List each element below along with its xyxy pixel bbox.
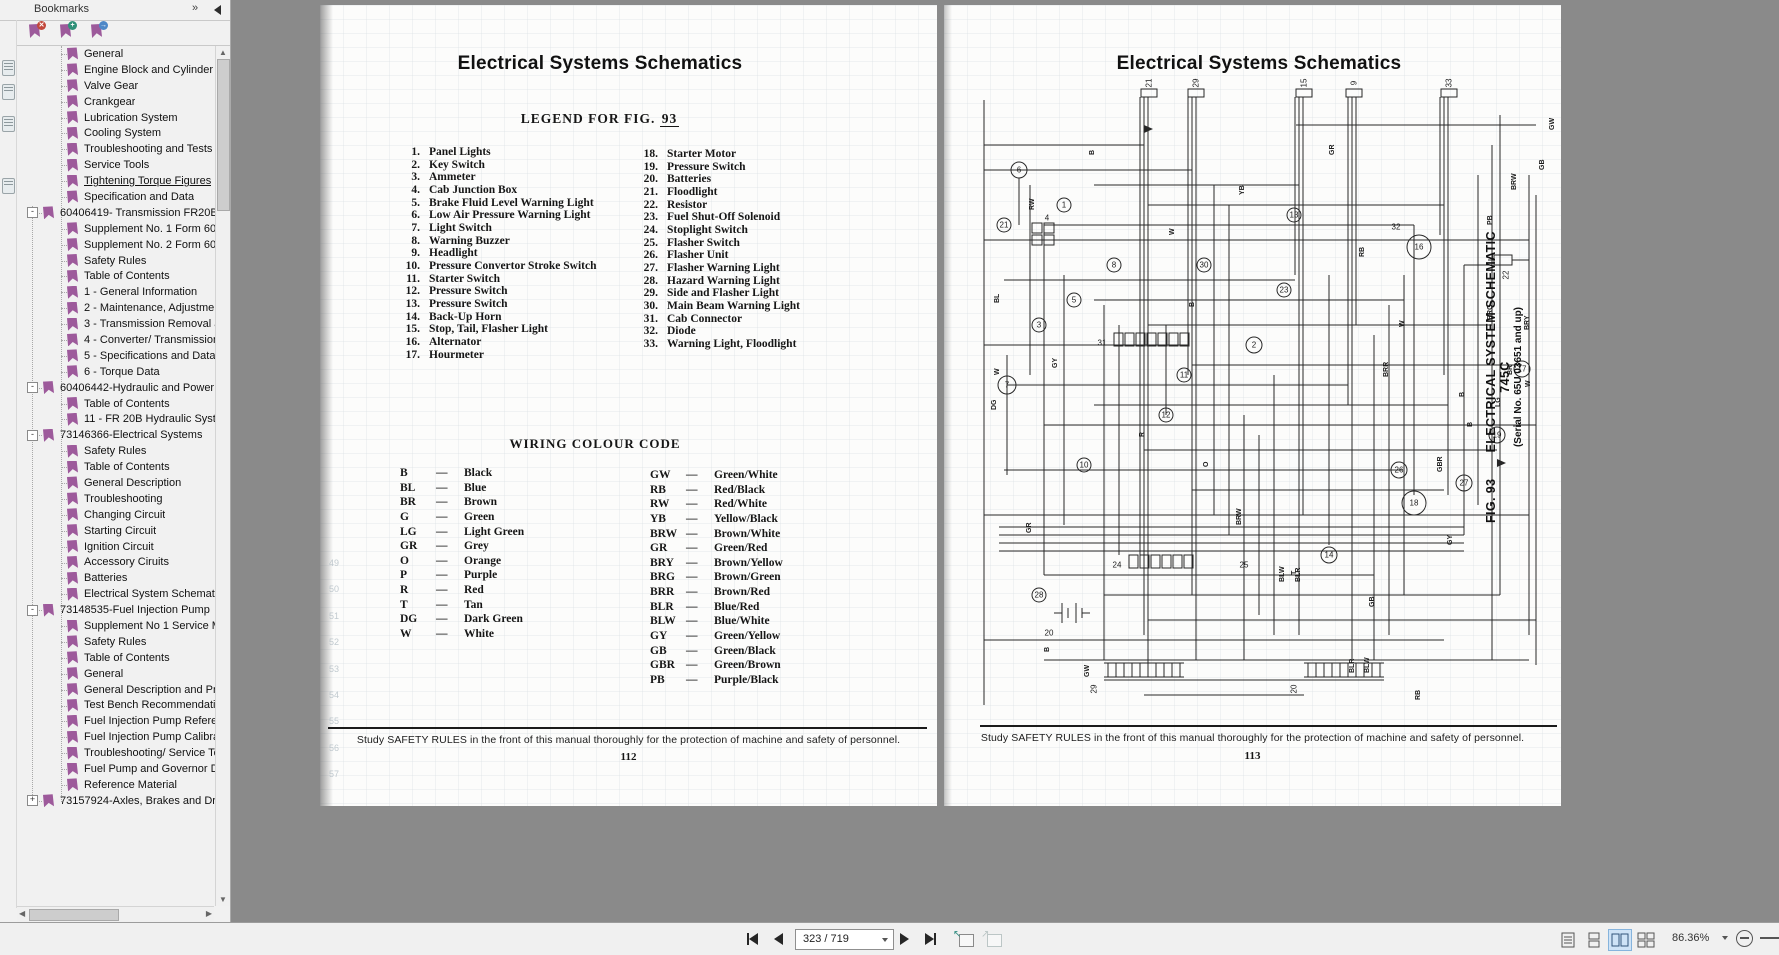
component-number: 24 — [1113, 561, 1122, 570]
bookmark-label: Fuel Injection Pump Reference, — [84, 715, 215, 727]
wire-colour-label: B — [1459, 392, 1466, 397]
new-bookmark-button[interactable]: + — [60, 24, 72, 39]
bookmark-icon — [43, 794, 54, 807]
bookmark-item[interactable]: Changing Circuit — [17, 507, 215, 523]
continuous-scroll-view-button[interactable] — [1582, 929, 1606, 951]
dash: — — [686, 542, 714, 554]
bookmark-icon — [67, 763, 78, 776]
bookmark-item[interactable]: Fuel Pump and Governor Disass — [17, 761, 215, 777]
collapse-icon[interactable]: - — [27, 605, 38, 616]
bookmarks-horizontal-scrollbar[interactable]: ◀ ▶ — [17, 906, 214, 922]
colour-code-item: GB—Green/Black — [650, 645, 783, 660]
component-number: 28 — [1035, 591, 1044, 600]
bookmark-item[interactable]: Batteries — [17, 570, 215, 586]
bookmark-item[interactable]: 6 - Torque Data — [17, 364, 215, 380]
colour-name: Light Green — [464, 526, 524, 538]
colour-code: BRW — [650, 528, 686, 540]
scroll-left-icon[interactable]: ◀ — [19, 909, 25, 918]
panel-collapse-icon[interactable] — [214, 5, 221, 15]
bookmark-icon — [67, 175, 78, 188]
legend-item: 5.Brake Fluid Level Warning Light — [394, 197, 596, 210]
bookmarks-panel-header: Bookmarks » — [0, 0, 230, 21]
single-page-icon — [1560, 932, 1576, 948]
collapse-icon[interactable]: - — [27, 382, 38, 393]
viewer-toolbar: 323 / 719 ↖ ↗ — [0, 922, 1779, 955]
bookmark-item[interactable]: -73148535-Fuel Injection Pump — [17, 602, 215, 618]
component-number: 23 — [1280, 286, 1289, 295]
legend-item-number: 20. — [632, 173, 658, 185]
legend-item-label: Diode — [667, 325, 696, 337]
next-view-button[interactable]: ↗ — [980, 930, 1003, 948]
bookmark-item[interactable]: Table of Contents — [17, 268, 215, 284]
bookmarks-vertical-scrollbar[interactable]: ▲ ▼ — [215, 46, 230, 906]
legend-item-number: 11. — [394, 273, 420, 285]
wire-colour-label: B — [1189, 302, 1196, 307]
bookmark-item[interactable]: Starting Circuit — [17, 523, 215, 539]
single-page-view-button[interactable] — [1556, 929, 1580, 951]
legend-item-number: 6. — [394, 209, 420, 221]
safety-note: Study SAFETY RULES in the front of this … — [944, 732, 1561, 744]
previous-view-button[interactable]: ↖ — [952, 930, 975, 948]
bookmark-item[interactable]: 1 - General Information — [17, 284, 215, 300]
component-number: 30 — [1200, 261, 1209, 270]
bookmark-item[interactable]: Ignition Circuit — [17, 539, 215, 555]
dash: — — [436, 526, 464, 538]
wire-colour-label: BLR — [1295, 568, 1302, 582]
bookmark-label: Starting Circuit — [84, 525, 156, 537]
bookmark-item[interactable]: Table of Contents — [17, 459, 215, 475]
scrollbar-thumb[interactable] — [217, 59, 230, 211]
colour-code-item: G—Green — [400, 511, 524, 526]
bookmark-item[interactable]: Safety Rules — [17, 253, 215, 269]
legend-item-label: Warning Buzzer — [429, 235, 510, 247]
dash: — — [436, 613, 464, 625]
wire-colour-label: W — [1399, 320, 1406, 327]
bookmark-label: Supplement No. 1 Form 604.06 — [84, 223, 215, 235]
colour-code-item: BL—Blue — [400, 482, 524, 497]
bookmark-item[interactable]: Table of Contents — [17, 396, 215, 412]
previous-page-button[interactable] — [774, 930, 783, 948]
bookmark-item[interactable]: Engine Block and Cylinder Head — [17, 62, 215, 78]
bookmark-label: Safety Rules — [84, 255, 146, 267]
component-number: 8 — [1112, 261, 1117, 270]
colour-name: Grey — [464, 540, 489, 552]
colour-code-column-1: B—BlackBL—BlueBR—BrownG—GreenLG—Light Gr… — [400, 467, 524, 643]
component-number: 20 — [1290, 684, 1299, 693]
bookmark-item[interactable]: 11 - FR 20B Hydraulic System — [17, 411, 215, 427]
zoom-out-button[interactable] — [1736, 930, 1753, 947]
legend-item-label: Headlight — [429, 247, 478, 259]
bookmark-item[interactable]: General — [17, 666, 215, 682]
bookmark-icon — [67, 715, 78, 728]
colour-name: Brown — [464, 496, 497, 508]
legend-column-1: 1.Panel Lights2.Key Switch3.Ammeter4.Cab… — [394, 146, 596, 361]
legend-item-label: Hazard Warning Light — [667, 275, 780, 287]
bookmark-item[interactable]: Fuel Injection Pump Reference, — [17, 713, 215, 729]
layers-tab-icon[interactable] — [2, 178, 15, 194]
colour-code: P — [400, 569, 436, 581]
bookmark-label: Test Bench Recommendations — [84, 699, 215, 711]
bookmark-label: 3 - Transmission Removal and In — [84, 318, 215, 330]
colour-code-item: O—Orange — [400, 555, 524, 570]
colour-code: YB — [650, 513, 686, 525]
dash: — — [686, 645, 714, 657]
bookmark-label: Supplement No 1 Service Manu — [84, 620, 215, 632]
bookmark-item[interactable]: General Description — [17, 475, 215, 491]
bookmark-item[interactable]: Electrical System Schematics — [17, 586, 215, 602]
component-number: 5 — [1072, 296, 1077, 305]
bookmark-label: 2 - Maintenance, Adjustments a — [84, 302, 215, 314]
bookmark-icon — [43, 381, 54, 394]
legend-item-label: Cab Junction Box — [429, 184, 517, 196]
zoom-dropdown-icon[interactable] — [1722, 936, 1728, 940]
component-number: 21 — [1000, 221, 1009, 230]
next-page-button[interactable] — [900, 930, 909, 948]
legend-item: 32.Diode — [632, 325, 800, 338]
wire-colour-label: RW — [1029, 198, 1036, 210]
bookmark-item[interactable]: -60406419- Transmission FR20B, FR — [17, 205, 215, 221]
legend-item-number: 21. — [632, 186, 658, 198]
colour-code-item: BRY—Brown/Yellow — [650, 557, 783, 572]
page-number: 113 — [944, 750, 1561, 762]
page-title: Electrical Systems Schematics — [1044, 53, 1474, 75]
colour-name: Green/Red — [714, 542, 767, 554]
bookmark-item[interactable]: Safety Rules — [17, 634, 215, 650]
colour-code: BLW — [650, 615, 686, 627]
bookmark-icon — [67, 190, 78, 203]
bleed-number: 54 — [329, 690, 339, 716]
colour-name: Green/Yellow — [714, 630, 780, 642]
bookmark-item[interactable]: General Description and Principl — [17, 682, 215, 698]
legend-item-label: Starter Motor — [667, 148, 736, 160]
legend-fig-number: 93 — [660, 111, 680, 127]
colour-name: Blue/Red — [714, 601, 759, 613]
dash: — — [686, 498, 714, 510]
bookmark-item[interactable]: -60406442-Hydraulic and Power Ste — [17, 380, 215, 396]
colour-code: BL — [400, 482, 436, 494]
bookmark-item[interactable]: 2 - Maintenance, Adjustments a — [17, 300, 215, 316]
wire-colour-label: GW — [1549, 118, 1556, 130]
colour-code-item: BRR—Brown/Red — [650, 586, 783, 601]
bookmark-label: General Description and Principl — [84, 684, 215, 696]
colour-name: Green — [464, 511, 494, 523]
bookmark-label: Troubleshooting/ Service Tools — [84, 747, 215, 759]
bookmark-item[interactable]: Supplement No. 1 Form 604.06 — [17, 221, 215, 237]
wire-colour-label: O — [1203, 461, 1210, 467]
bookmark-item[interactable]: 4 - Converter/ Transmission Uni — [17, 332, 215, 348]
bookmark-label: Lubrication System — [84, 112, 178, 124]
bookmark-label: 73146366-Electrical Systems — [60, 429, 202, 441]
legend-item: 21.Floodlight — [632, 186, 800, 199]
legend-item-number: 14. — [394, 311, 420, 323]
colour-name: Brown/Green — [714, 571, 781, 583]
bookmark-icon — [67, 159, 78, 172]
legend-item: 18.Starter Motor — [632, 148, 800, 161]
component-number: 9 — [1350, 80, 1359, 85]
colour-code: GW — [650, 469, 686, 481]
colour-code: W — [400, 628, 436, 640]
dash: — — [686, 630, 714, 642]
dash: — — [436, 555, 464, 567]
bookmark-label: Service Tools — [84, 159, 149, 171]
colour-code-item: GY—Green/Yellow — [650, 630, 783, 645]
legend-item-number: 5. — [394, 197, 420, 209]
colour-name: Dark Green — [464, 613, 523, 625]
legend-item-number: 27. — [632, 262, 658, 274]
bookmark-icon — [67, 397, 78, 410]
legend-item-label: Brake Fluid Level Warning Light — [429, 197, 594, 209]
bookmark-item[interactable]: Supplement No 1 Service Manu — [17, 618, 215, 634]
bookmark-item[interactable]: Troubleshooting — [17, 491, 215, 507]
zoom-level-value[interactable]: 86.36% — [1672, 932, 1709, 944]
colour-code-item: R—Red — [400, 584, 524, 599]
bookmark-icon — [67, 302, 78, 315]
legend-item-number: 12. — [394, 285, 420, 297]
bookmark-icon — [67, 683, 78, 696]
colour-name: Red — [464, 584, 484, 596]
legend-item: 30.Main Beam Warning Light — [632, 300, 800, 313]
wire-colour-label: GB — [1369, 597, 1376, 608]
zoom-slider-track[interactable] — [1760, 937, 1779, 939]
legend-item-label: Pressure Switch — [667, 161, 745, 173]
component-number: 12 — [1162, 411, 1171, 420]
bookmark-label: Fuel Pump and Governor Disass — [84, 763, 215, 775]
two-page-scroll-view-button[interactable] — [1634, 929, 1658, 951]
dash: — — [686, 615, 714, 627]
legend-item-label: Light Switch — [429, 222, 492, 234]
last-page-button[interactable] — [925, 930, 936, 948]
colour-code-item: BRG—Brown/Green — [650, 571, 783, 586]
bookmark-item[interactable]: 3 - Transmission Removal and In — [17, 316, 215, 332]
colour-name: Purple/Black — [714, 674, 779, 686]
colour-code-column-2: GW—Green/WhiteRB—Red/BlackRW—Red/WhiteYB… — [650, 469, 783, 688]
component-number: 31 — [1098, 339, 1107, 348]
bookmark-label: General — [84, 668, 123, 680]
dash: — — [436, 482, 464, 494]
bookmark-icon — [67, 111, 78, 124]
figure-number: FIG. 93 — [1484, 479, 1498, 523]
component-number: 16 — [1415, 243, 1424, 252]
colour-name: Orange — [464, 555, 501, 567]
bookmark-item[interactable]: Tightening Torque Figures — [17, 173, 215, 189]
bookmark-item[interactable]: Cooling System — [17, 125, 215, 141]
bookmark-item[interactable]: Lubrication System — [17, 110, 215, 126]
bookmark-label: Cooling System — [84, 127, 161, 139]
component-number: 11 — [1180, 371, 1189, 380]
legend-heading: LEGEND FOR FIG. 93 — [400, 111, 800, 127]
legend-item-label: Flasher Switch — [667, 237, 740, 249]
two-page-icon — [1611, 932, 1629, 948]
dash: — — [436, 496, 464, 508]
legend-item-label: Low Air Pressure Warning Light — [429, 209, 590, 221]
bookmark-label: Troubleshooting — [84, 493, 162, 505]
first-page-button[interactable] — [747, 930, 758, 948]
bookmark-item[interactable]: Accessory Ciruits — [17, 555, 215, 571]
panel-expand-icon[interactable]: » — [192, 2, 198, 14]
legend-item-number: 26. — [632, 249, 658, 261]
bookmark-icon — [43, 429, 54, 442]
legend-item-label: Pressure Switch — [429, 298, 507, 310]
wire-colour-label: GY — [1052, 358, 1059, 368]
bookmark-icon — [67, 667, 78, 680]
legend-item: 31.Cab Connector — [632, 313, 800, 326]
legend-item-label: Alternator — [429, 336, 481, 348]
previous-page-icon — [774, 933, 783, 945]
bookmark-label: 1 - General Information — [84, 286, 197, 298]
dash: — — [686, 469, 714, 481]
wire-colour-label: BRY — [1524, 315, 1531, 330]
legend-item-number: 7. — [394, 222, 420, 234]
thumbnails-tab-icon[interactable] — [2, 60, 15, 76]
pdf-viewer-window: { "sidebar": { "title": "Bookmarks", "ex… — [0, 0, 1779, 954]
wire-colour-label: GR — [1026, 523, 1033, 534]
dash: — — [686, 674, 714, 686]
colour-code: B — [400, 467, 436, 479]
legend-item-number: 23. — [632, 211, 658, 223]
scroll-down-icon[interactable]: ▼ — [219, 895, 227, 904]
legend-item-number: 32. — [632, 325, 658, 337]
legend-item: 15.Stop, Tail, Flasher Light — [394, 323, 596, 336]
colour-code-item: W—White — [400, 628, 524, 643]
bookmark-item[interactable]: Troubleshooting and Tests — [17, 141, 215, 157]
goto-badge-icon: → — [99, 21, 108, 30]
bookmark-icon — [67, 731, 78, 744]
legend-item-number: 2. — [394, 159, 420, 171]
bookmark-label: Valve Gear — [84, 80, 138, 92]
legend-item-number: 1. — [394, 146, 420, 158]
scroll-right-icon[interactable]: ▶ — [206, 909, 212, 918]
legend-item: 24.Stoplight Switch — [632, 224, 800, 237]
bookmark-item[interactable]: Troubleshooting/ Service Tools — [17, 745, 215, 761]
goto-bookmark-button[interactable]: → — [91, 24, 103, 39]
next-view-arrow-icon: ↗ — [981, 930, 989, 940]
legend-item-number: 18. — [632, 148, 658, 160]
bookmark-item[interactable]: Crankgear — [17, 94, 215, 110]
bookmark-icon — [67, 461, 78, 474]
colour-code-item: GW—Green/White — [650, 469, 783, 484]
bookmark-label: General Description — [84, 477, 181, 489]
component-number: 4 — [1045, 214, 1050, 223]
bookmark-item[interactable]: Reference Material — [17, 777, 215, 793]
bookmark-label: Changing Circuit — [84, 509, 165, 521]
bookmark-icon — [67, 524, 78, 537]
bookmark-icon — [67, 222, 78, 235]
wire-colour-label: R — [1139, 432, 1146, 437]
dash: — — [436, 584, 464, 596]
colour-code-item: P—Purple — [400, 569, 524, 584]
legend-item: 29.Side and Flasher Light — [632, 287, 800, 300]
bleed-number: 50 — [329, 584, 339, 610]
bookmark-label: 73157924-Axles, Brakes and Drive — [60, 795, 215, 807]
bookmark-icon — [67, 476, 78, 489]
bookmark-label: Reference Material — [84, 779, 177, 791]
dash: — — [436, 540, 464, 552]
wire-colour-label: BRR — [1383, 362, 1390, 377]
bookmark-icon — [67, 445, 78, 458]
bookmark-label: Table of Contents — [84, 398, 170, 410]
bookmark-icon — [67, 286, 78, 299]
collapse-icon[interactable]: - — [27, 430, 38, 441]
bookmark-label: 5 - Specifications and Data — [84, 350, 215, 362]
bookmark-label: Safety Rules — [84, 445, 146, 457]
bookmark-item[interactable]: Valve Gear — [17, 78, 215, 94]
chevron-down-icon[interactable] — [882, 938, 888, 942]
dash: — — [686, 557, 714, 569]
legend-item-number: 3. — [394, 171, 420, 183]
component-number: 3 — [1037, 321, 1042, 330]
bookmark-label: Table of Contents — [84, 652, 170, 664]
legend-item-label: Cab Connector — [667, 313, 742, 325]
legend-item: 20.Batteries — [632, 173, 800, 186]
two-page-view-button[interactable] — [1608, 929, 1632, 951]
dash: — — [436, 599, 464, 611]
colour-code: LG — [400, 526, 436, 538]
expand-icon[interactable]: + — [27, 795, 38, 806]
bookmark-item[interactable]: Service Tools — [17, 157, 215, 173]
wire-colour-label: RB — [1359, 247, 1366, 257]
component-number: 29 — [1090, 684, 1099, 693]
bookmark-item[interactable]: Test Bench Recommendations — [17, 698, 215, 714]
colour-name: Green/White — [714, 469, 778, 481]
colour-code: BRR — [650, 586, 686, 598]
bookmark-item[interactable]: Safety Rules — [17, 443, 215, 459]
wire-colour-label: BL — [994, 293, 1001, 303]
attachments-tab-icon[interactable] — [2, 116, 15, 132]
page-number-input[interactable]: 323 / 719 — [795, 929, 894, 950]
collapse-icon[interactable]: - — [27, 207, 38, 218]
scrollbar-thumb[interactable] — [29, 909, 119, 921]
legend-item-label: Ammeter — [429, 171, 476, 183]
colour-code: RW — [650, 498, 686, 510]
legend-item-number: 33. — [632, 338, 658, 350]
bookmark-item[interactable]: Table of Contents — [17, 650, 215, 666]
bookmark-item[interactable]: Supplement No. 2 Form 604.06 — [17, 237, 215, 253]
colour-name: Yellow/Black — [714, 513, 778, 525]
colour-code-item: GR—Grey — [400, 540, 524, 555]
colour-code-item: T—Tan — [400, 599, 524, 614]
bookmark-item[interactable]: +73157924-Axles, Brakes and Drive — [17, 793, 215, 809]
bookmarks-tab-icon[interactable] — [2, 84, 15, 100]
bookmark-item[interactable]: Fuel Injection Pump Calibration — [17, 729, 215, 745]
bookmark-item[interactable]: 5 - Specifications and Data — [17, 348, 215, 364]
scroll-up-icon[interactable]: ▲ — [219, 48, 227, 57]
bookmark-item[interactable]: Specification and Data — [17, 189, 215, 205]
legend-item: 16.Alternator — [394, 336, 596, 349]
bookmark-item[interactable]: -73146366-Electrical Systems — [17, 427, 215, 443]
bookmark-icon — [67, 699, 78, 712]
wire-colour-label: BLW — [1279, 566, 1286, 582]
colour-code: GY — [650, 630, 686, 642]
colour-code-item: YB—Yellow/Black — [650, 513, 783, 528]
bookmark-icon — [67, 254, 78, 267]
colour-code: G — [400, 511, 436, 523]
bookmark-label: Specification and Data — [84, 191, 194, 203]
bookmark-icon — [43, 604, 54, 617]
figure-caption: FIG. 93ELECTRICAL SYSTEM SCHEMATIC 745C … — [1484, 227, 1524, 527]
colour-name: Blue — [464, 482, 486, 494]
bookmarks-tree: GeneralEngine Block and Cylinder HeadVal… — [17, 46, 215, 904]
wire-colour-label: B — [1089, 150, 1096, 155]
delete-bookmark-button[interactable]: ✕ — [29, 24, 41, 39]
bookmark-label: Engine Block and Cylinder Head — [84, 64, 215, 76]
bookmarks-toolbar: ✕ + → — [17, 20, 230, 46]
bookmark-icon — [67, 492, 78, 505]
wire-colour-label: B — [1467, 422, 1474, 427]
colour-code-item: PB—Purple/Black — [650, 674, 783, 689]
colour-code-item: RB—Red/Black — [650, 484, 783, 499]
bookmark-item[interactable]: General — [17, 46, 215, 62]
legend-item: 23.Fuel Shut-Off Solenoid — [632, 211, 800, 224]
